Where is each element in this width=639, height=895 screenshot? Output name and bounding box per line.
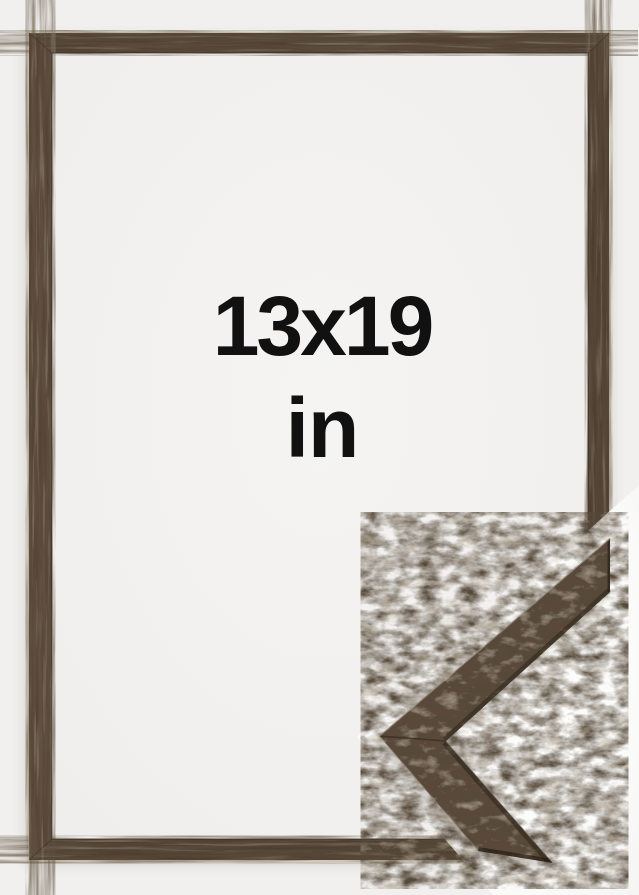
unit-label: in — [286, 381, 359, 475]
frame-product-image: 13x19 in — [0, 0, 639, 895]
frame-left-bar — [29, 33, 52, 860]
frame-top-bar-tint — [29, 33, 609, 53]
size-label: 13x19 — [213, 279, 432, 373]
product-photo-canvas: 13x19 in — [0, 0, 639, 895]
